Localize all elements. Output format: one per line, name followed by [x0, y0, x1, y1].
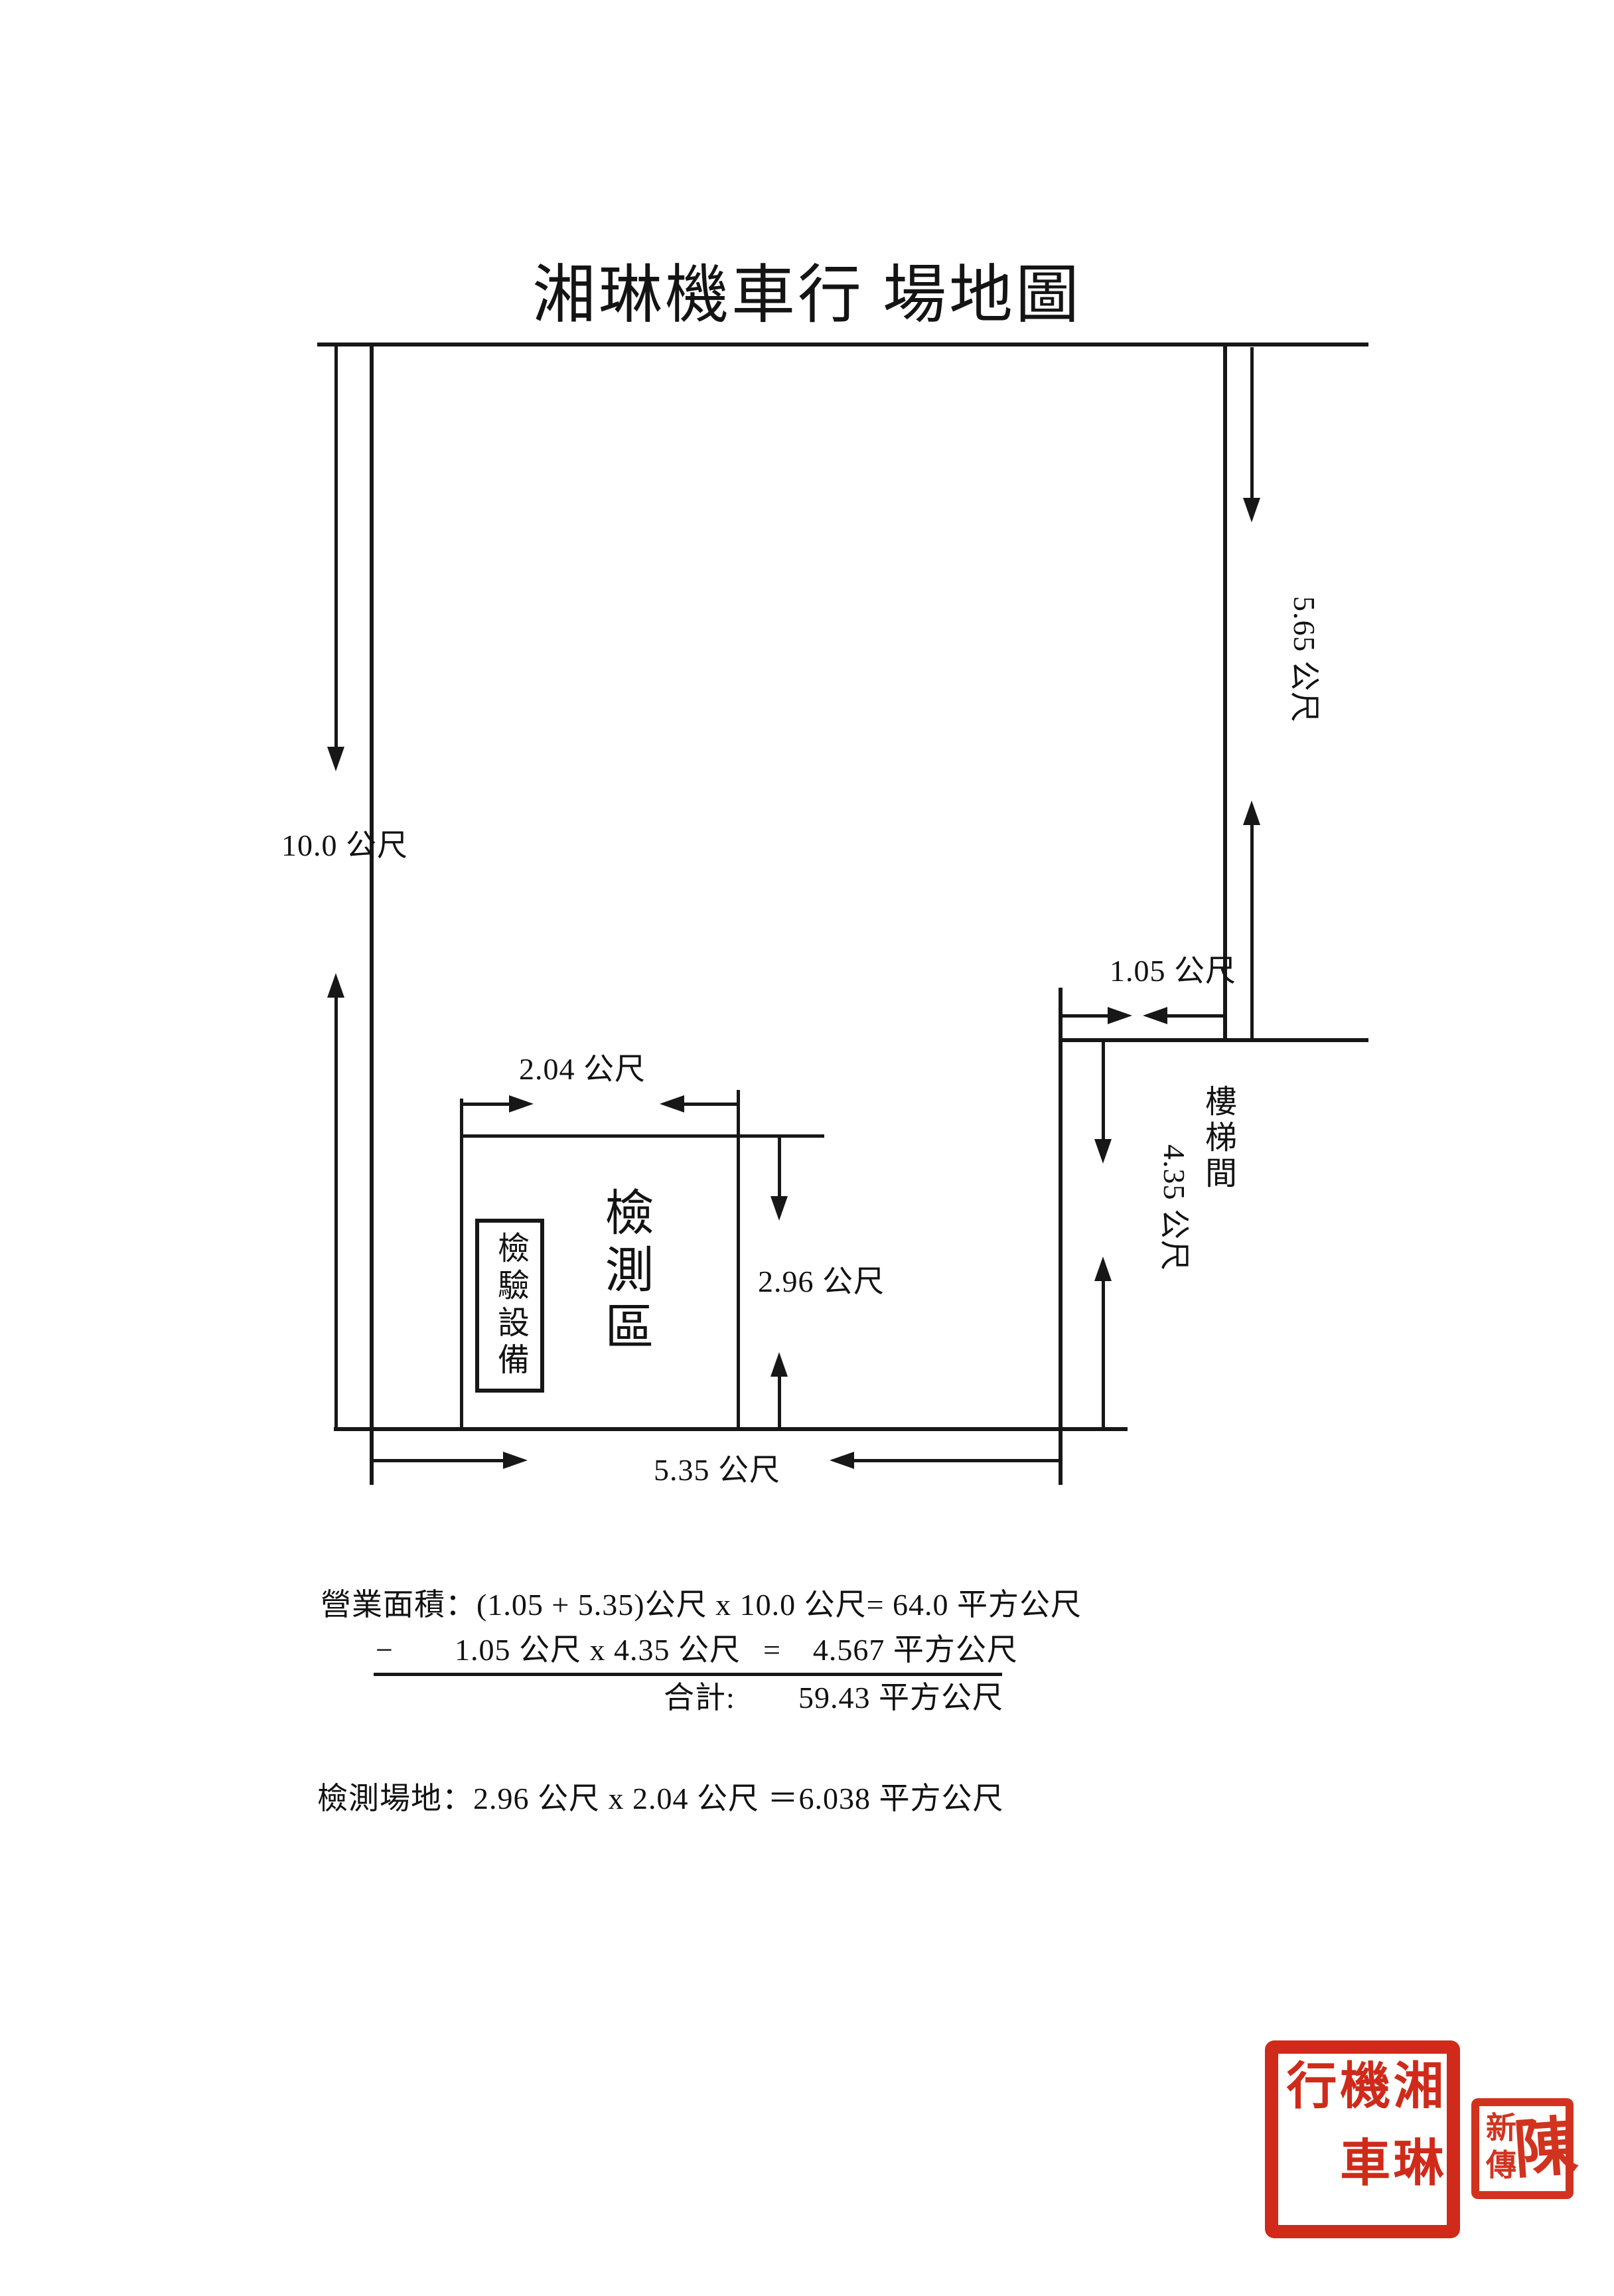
dim-notch-height-line-lower [1102, 1280, 1105, 1428]
dim-test-width-arrowhead-right [509, 1095, 534, 1112]
dim-notch-height-label: 4.35 公尺 [1157, 1144, 1191, 1271]
calc-line2-expression: 1.05 公尺 x 4.35 公尺 [455, 1632, 741, 1668]
calc-business-area-line2: − 1.05 公尺 x 4.35 公尺 = 4.567 平方公尺 [376, 1632, 1018, 1668]
dim-notch-width-label: 1.05 公尺 [1110, 955, 1236, 988]
wall-stairwell-top [1059, 1038, 1368, 1042]
dim-test-height-line-upper [778, 1137, 781, 1197]
dim-test-width-label: 2.04 公尺 [519, 1053, 646, 1087]
dim-left-line-lower [334, 997, 338, 1428]
dim-bottom-label: 5.35 公尺 [654, 1454, 780, 1488]
wall-stairwell-left [1059, 988, 1063, 1485]
dim-right-line-upper [1250, 347, 1254, 498]
dim-test-width-arrowhead-left [660, 1095, 684, 1112]
dim-test-width-line-left [463, 1103, 510, 1106]
name-seal-stamp: 新傳 陳 [1471, 2098, 1574, 2199]
dim-right-arrowhead-up [1243, 801, 1260, 825]
dim-test-height-label: 2.96 公尺 [758, 1265, 885, 1299]
dim-bottom-arrowhead-right [503, 1452, 528, 1469]
dim-notch-width-arrowhead-right [1108, 1007, 1132, 1024]
test-area-top-line [460, 1134, 824, 1138]
dim-bottom-line-right [854, 1459, 1060, 1462]
page-title: 湘琳機車行 場地圖 [0, 243, 1614, 335]
dim-right-line-lower [1250, 824, 1254, 1041]
calc-test-site-line: 檢測場地：2.96 公尺 x 2.04 公尺 ＝6.038 平方公尺 [317, 1780, 1004, 1817]
wall-bottom [334, 1427, 1128, 1431]
dim-notch-width-line-left [1061, 1014, 1108, 1018]
calc-minus-sign: − [376, 1632, 394, 1668]
name-seal-main-text: 陳 [1512, 2115, 1579, 2182]
company-seal-stamp: 湘琳機車行 [1265, 2040, 1460, 2238]
dim-test-width-line-right [684, 1103, 738, 1106]
dim-notch-width-arrowhead-left [1143, 1007, 1167, 1024]
calc-line2-equals: = [763, 1632, 781, 1668]
dim-notch-height-arrowhead-down [1094, 1139, 1112, 1164]
test-equipment-box: 檢驗設備 [475, 1219, 544, 1393]
dim-bottom-line-left [373, 1459, 504, 1462]
dim-left-arrowhead-down [327, 747, 344, 771]
test-area-right-line [737, 1090, 740, 1430]
wall-right [1223, 343, 1227, 1042]
name-seal-side-text: 新傳 [1483, 2111, 1514, 2186]
calc-total-label: 合計: [664, 1679, 735, 1716]
dim-right-label: 5.65 公尺 [1287, 596, 1321, 723]
dim-left-label: 10.0 公尺 [281, 829, 408, 863]
dim-notch-height-line-upper [1102, 1042, 1105, 1140]
calc-underline [374, 1673, 1002, 1676]
calc-line2-result: 4.567 平方公尺 [813, 1632, 1018, 1668]
test-area-left-line [460, 1099, 463, 1430]
dim-right-arrowhead-down [1243, 498, 1260, 522]
dim-test-height-arrowhead-down [770, 1196, 788, 1221]
stairwell-label: 樓梯間 [1201, 1085, 1233, 1192]
test-equipment-label: 檢驗設備 [494, 1231, 526, 1380]
test-area-label: 檢測區 [600, 1187, 649, 1358]
dim-left-arrowhead-up [327, 973, 344, 998]
company-seal-text: 湘琳機車行 [1280, 2059, 1440, 2218]
wall-top [317, 343, 1368, 346]
wall-left [370, 343, 374, 1485]
calc-total-value: 59.43 平方公尺 [798, 1679, 1003, 1716]
dim-test-height-arrowhead-up [770, 1352, 788, 1377]
calc-business-area-line1: 營業面積：(1.05 + 5.35)公尺 x 10.0 公尺= 64.0 平方公… [321, 1586, 1082, 1623]
dim-left-line-upper [334, 346, 338, 747]
dim-notch-width-line-right [1167, 1014, 1224, 1018]
scanned-document-page: 湘琳機車行 場地圖 檢測區 檢驗設備 樓梯間 10.0 公尺 5.65 公尺 1… [0, 0, 1614, 2296]
dim-notch-height-arrowhead-up [1094, 1257, 1112, 1281]
dim-bottom-arrowhead-left [830, 1452, 854, 1469]
dim-test-height-line-lower [778, 1376, 781, 1428]
